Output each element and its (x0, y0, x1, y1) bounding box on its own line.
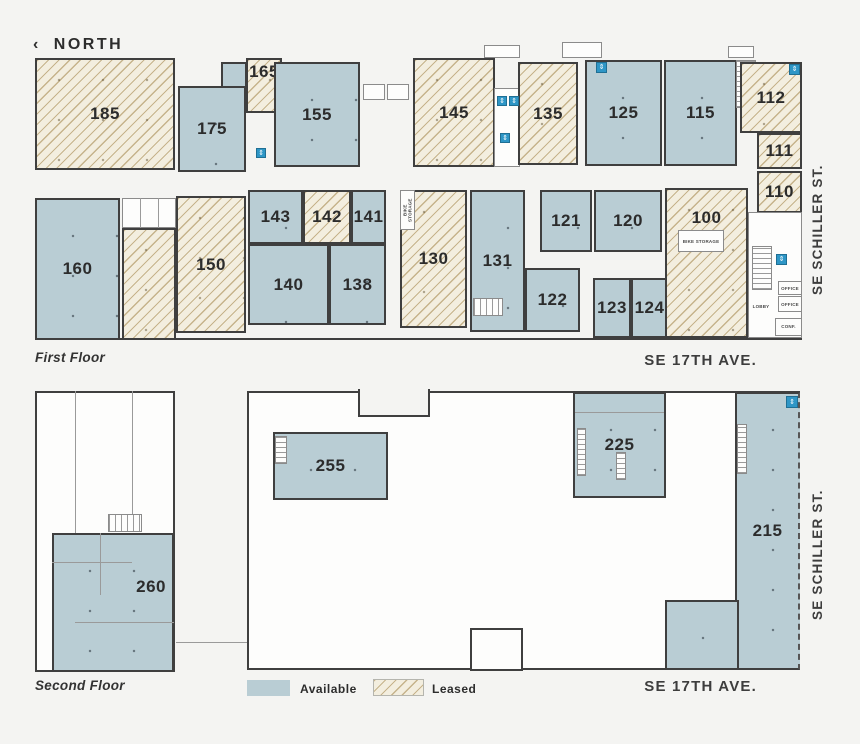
unit-185: 185 (35, 58, 175, 170)
stairs (577, 428, 586, 476)
unit-131-label: 131 (483, 251, 513, 271)
unit-100: 100 (665, 188, 748, 338)
unit-140-label: 140 (274, 275, 304, 295)
roof-structure (484, 45, 520, 58)
legend-leased-swatch (373, 679, 424, 696)
unit-255-label: 255 (316, 456, 346, 476)
unit-175: 175 (178, 86, 246, 172)
unit-175-annex (221, 62, 247, 88)
conference-label: CONF. (775, 320, 802, 332)
unit-185-label: 185 (90, 104, 120, 124)
north-indicator: ‹ NORTH (33, 36, 123, 54)
unit-115-label: 115 (686, 103, 715, 123)
legend-available-label: Available (300, 682, 357, 696)
unit-141: 141 (351, 190, 386, 244)
restroom-icon: ⇕ (497, 96, 507, 106)
legend-leased-label: Leased (432, 682, 476, 696)
unit-130-label: 130 (419, 249, 449, 269)
floor-plan-page: ‹ NORTH 185 175 165 155 145 135 125 115 … (0, 0, 860, 744)
small-structure (470, 628, 523, 671)
exterior-wall (35, 338, 802, 340)
roof-structure (728, 46, 754, 58)
unit-123-label: 123 (597, 298, 627, 318)
unit-111: 111 (757, 133, 802, 169)
office-label: OFFICE (778, 298, 802, 310)
restroom-icon: ⇕ (500, 133, 510, 143)
unit-135-label: 135 (533, 104, 563, 124)
unit-255: 255 (273, 432, 388, 500)
unit-122: 122 (525, 268, 580, 332)
unit-100-label: 100 (692, 208, 722, 228)
unit-155: 155 (274, 62, 360, 167)
unit-142: 142 (303, 190, 351, 244)
unit-123: 123 (593, 278, 631, 338)
unit-125-label: 125 (609, 103, 639, 123)
restroom-icon: ⇕ (256, 148, 266, 158)
unit-138: 138 (329, 244, 386, 325)
unit-260-label: 260 (136, 577, 166, 597)
stairs (737, 424, 747, 474)
elevator-icon: ⇕ (786, 396, 798, 408)
unit-121-label: 121 (551, 211, 581, 231)
restroom-icon: ⇕ (509, 96, 519, 106)
elevator-icon: ⇕ (776, 254, 787, 265)
unit-260: 260 (52, 533, 174, 672)
wall (158, 198, 159, 228)
stairs (275, 436, 287, 464)
stairs (752, 246, 772, 290)
unit-124-label: 124 (635, 298, 665, 318)
street-label-schiller: SE SCHILLER ST. (810, 135, 825, 295)
unit-155-label: 155 (302, 105, 332, 125)
unit-125: 125 (585, 60, 662, 166)
property-line (176, 642, 247, 643)
street-label-17th-ave: SE 17TH AVE. (597, 678, 757, 695)
unit-143-label: 143 (261, 207, 291, 227)
unit-160-label: 160 (63, 259, 93, 279)
unit-110: 110 (757, 171, 802, 213)
wall (52, 562, 132, 563)
elevator-icon: ⇕ (789, 64, 800, 75)
building-notch (358, 389, 430, 417)
unit-138-label: 138 (343, 275, 373, 295)
unit-145: 145 (413, 58, 495, 167)
unit-135: 135 (518, 62, 578, 165)
unit-112-label: 112 (757, 88, 786, 108)
unit-115: 115 (664, 60, 737, 166)
service-core (122, 198, 176, 228)
unit-143: 143 (248, 190, 303, 244)
stairs (108, 514, 142, 532)
unit-121: 121 (540, 190, 592, 252)
unit-150-label: 150 (196, 255, 226, 275)
wall (100, 533, 101, 595)
corridor-room (363, 84, 385, 100)
unit-142-label: 142 (312, 207, 342, 227)
wall (140, 198, 141, 228)
north-arrow-icon: ‹ (33, 36, 41, 53)
lobby-label: LOBBY (748, 300, 774, 312)
roof-structure (562, 42, 602, 58)
bike-storage-label: BIKE STORAGE (402, 192, 413, 228)
unit-215-label: 215 (753, 521, 783, 541)
first-floor-caption: First Floor (35, 350, 105, 365)
office-label: OFFICE (778, 282, 802, 294)
stairs (473, 298, 503, 316)
unit-111-label: 111 (766, 141, 794, 161)
leased-area (122, 228, 176, 340)
unit-141-label: 141 (354, 207, 384, 227)
second-floor-caption: Second Floor (35, 678, 125, 693)
north-label: NORTH (54, 36, 123, 53)
corridor-room (387, 84, 409, 100)
wall (132, 391, 133, 532)
unit-160: 160 (35, 198, 120, 340)
bike-storage-label: BIKE STORAGE (679, 231, 723, 251)
street-label-schiller: SE SCHILLER ST. (810, 460, 825, 620)
wall (75, 622, 174, 623)
legend-available-swatch (247, 680, 290, 696)
stairs (616, 452, 626, 480)
unit-124: 124 (631, 278, 668, 338)
unit-145-label: 145 (439, 103, 469, 123)
unit-215-annex (665, 600, 739, 670)
unit-225: 225 (573, 392, 666, 498)
unit-175-label: 175 (197, 119, 227, 139)
unit-120: 120 (594, 190, 662, 252)
unit-110-label: 110 (765, 182, 794, 202)
unit-150: 150 (176, 196, 246, 333)
wall (575, 412, 664, 413)
unit-120-label: 120 (613, 211, 643, 231)
street-label-17th-ave: SE 17TH AVE. (597, 352, 757, 369)
elevator-icon: ⇕ (596, 62, 607, 73)
unit-140: 140 (248, 244, 329, 325)
unit-122-label: 122 (538, 290, 568, 310)
